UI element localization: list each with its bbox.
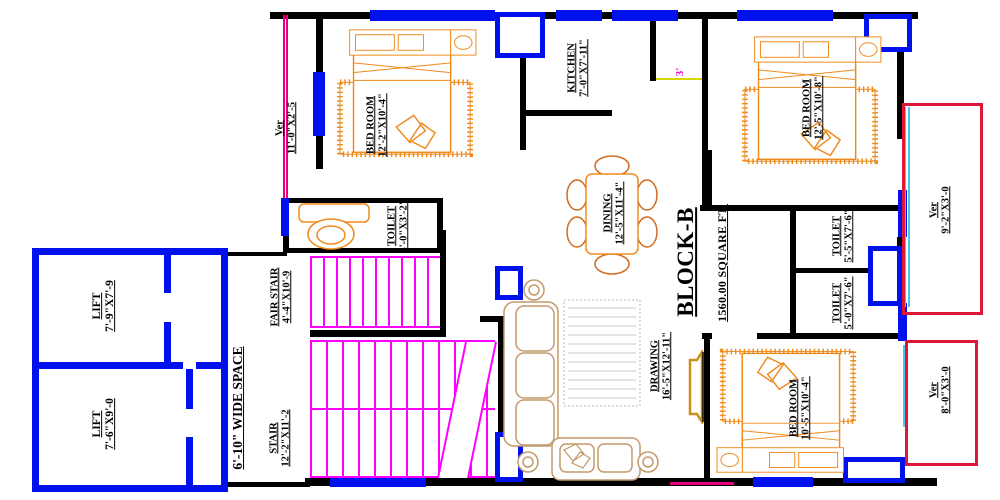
label-toilet-r2: TOILET 5'-0"X7'-6" (831, 276, 855, 329)
room-dim: 12'-5"X10'-8" (813, 76, 825, 140)
window-top-kitchen-a (556, 10, 602, 21)
lift2-door-stub-b (186, 437, 193, 492)
label-kitchen: KITCHEN 7'-0"X7'-11" (566, 39, 590, 97)
column-top-center (495, 12, 545, 58)
label-toilet-r1: TOILET 5'-5"X7'-6" (831, 209, 855, 262)
room-name: Ver (928, 186, 940, 233)
room-name: LIFT (91, 398, 104, 450)
block-area: 1560.00 SQUARE FT. (715, 204, 729, 322)
room-name: BED ROOM (365, 93, 377, 157)
room-dim: 9'-2"X3'-0 (940, 186, 952, 233)
lift-block-outline (32, 248, 228, 492)
label-stair: STAIR 12'-2"X11'-2 (268, 409, 292, 466)
toilet-icon (297, 202, 379, 252)
label-block-title: BLOCK-B (673, 207, 699, 317)
label-block-area: 1560.00 SQUARE FT. (713, 204, 731, 322)
label-wide-space: 6'-10" WIDE SPACE (229, 346, 247, 469)
room-dim: 7'-6"X9'-0 (104, 398, 117, 450)
lift1-door-stub-b (164, 322, 171, 362)
room-name: DRAWING (649, 332, 661, 400)
room-name: FAIR STAIR (269, 268, 281, 327)
label-drawing: DRAWING 16'-5"X12'-11" (649, 332, 673, 400)
stair-break-icon (420, 340, 498, 478)
room-name: 6'-10" WIDE SPACE (230, 346, 245, 469)
window-bottom-stair (330, 477, 426, 487)
room-name: BED ROOM (788, 376, 800, 440)
dim-text: 3' (674, 68, 686, 77)
lift-divider-wall-b (196, 362, 228, 369)
column-right-mid (868, 246, 902, 306)
wall-toilet-mid-right (437, 198, 443, 253)
tv-icon (686, 350, 706, 424)
block-name: BLOCK-B (673, 207, 698, 317)
room-name: STAIR (268, 409, 280, 466)
room-name: Ver (274, 102, 286, 154)
room-dim: 5'-0"X7'-6" (843, 276, 855, 329)
room-dim: 7'-9"X7'-9 (104, 280, 117, 332)
label-toilet-mid: TOILET 4'-0"X3'-2" (386, 199, 410, 252)
room-dim: 7'-0"X7'-11" (578, 39, 590, 97)
floor-plan: Ver 11'-0"X2'-5 BED ROOM 12'-2"X10'-4" K… (0, 0, 1000, 500)
room-dim: 4'-0"X3'-2" (398, 199, 410, 252)
wall-stair-landing (310, 330, 446, 337)
room-name: BED ROOM (801, 76, 813, 140)
room-name: LIFT (91, 280, 104, 332)
room-dim: 12'-2"X11'-2 (280, 409, 292, 466)
bed-icon (332, 26, 478, 162)
wall-left-small (283, 236, 289, 253)
label-lift1: LIFT 7'-9"X7'-9 (91, 280, 117, 332)
window-ver-divider (313, 72, 325, 136)
window-top-bedroom-tr (737, 10, 833, 21)
label-ver-right: Ver 9'-2"X3'-0 (928, 186, 952, 233)
room-dim: 10'-5"X10'-4" (800, 376, 812, 440)
door-dim-line (656, 78, 702, 80)
wall-drawing-connector (480, 316, 500, 322)
wall-hall-divider-top (702, 19, 708, 150)
wall-corridor-bottom (228, 482, 310, 487)
label-door-dim: 3' (670, 68, 688, 77)
label-bedroom-tl: BED ROOM 12'-2"X10'-4" (365, 93, 389, 157)
wall-kitchen-right (650, 19, 656, 81)
lift1-door-stub-a (164, 255, 171, 293)
room-name: TOILET (831, 209, 843, 262)
room-dim: 8'-0"X3'-0 (940, 366, 952, 413)
lift2-door-stub-a (186, 369, 193, 409)
room-name: Ver (928, 366, 940, 413)
room-name: DINING (602, 182, 614, 245)
room-dim: 12'-2"X10'-4" (377, 93, 389, 157)
wall-bedroom-b-top-b (757, 333, 904, 339)
room-name: TOILET (831, 276, 843, 329)
label-bedroom-tr: BED ROOM 12'-5"X10'-8" (801, 76, 825, 140)
room-dim: 5'-5"X7'-6" (843, 209, 855, 262)
window-top-bedroom-tl (370, 10, 495, 21)
room-dim: 11'-0"X2'-5 (286, 102, 298, 154)
lift-divider-wall (39, 362, 183, 369)
label-ver-bottom: Ver 8'-0"X3'-0 (928, 366, 952, 413)
label-lift2: LIFT 7'-6"X9'-0 (91, 398, 117, 450)
room-dim: 12'-5"X11'-4" (614, 182, 626, 245)
window-toilet-mid (281, 198, 289, 236)
fair-stair-treads (310, 256, 440, 328)
label-dining: DINING 12'-5"X11'-4" (602, 182, 626, 245)
wall-hall-bar (702, 150, 712, 207)
window-top-kitchen-b (612, 10, 678, 21)
label-ver-top: Ver 11'-0"X2'-5 (274, 102, 298, 154)
window-bottom-bedroom-b (753, 477, 813, 487)
room-name: TOILET (386, 199, 398, 252)
room-dim: 16'-5"X12'-11" (661, 332, 673, 400)
label-bedroom-b: BED ROOM 10'-5"X10'-4" (788, 376, 812, 440)
label-fair-stair: FAIR STAIR 4'-4"X10'-9 (269, 268, 293, 327)
room-name: KITCHEN (566, 39, 578, 97)
room-dim: 4'-4"X10'-9 (281, 268, 293, 327)
wall-kitchen-bottom (526, 110, 612, 116)
